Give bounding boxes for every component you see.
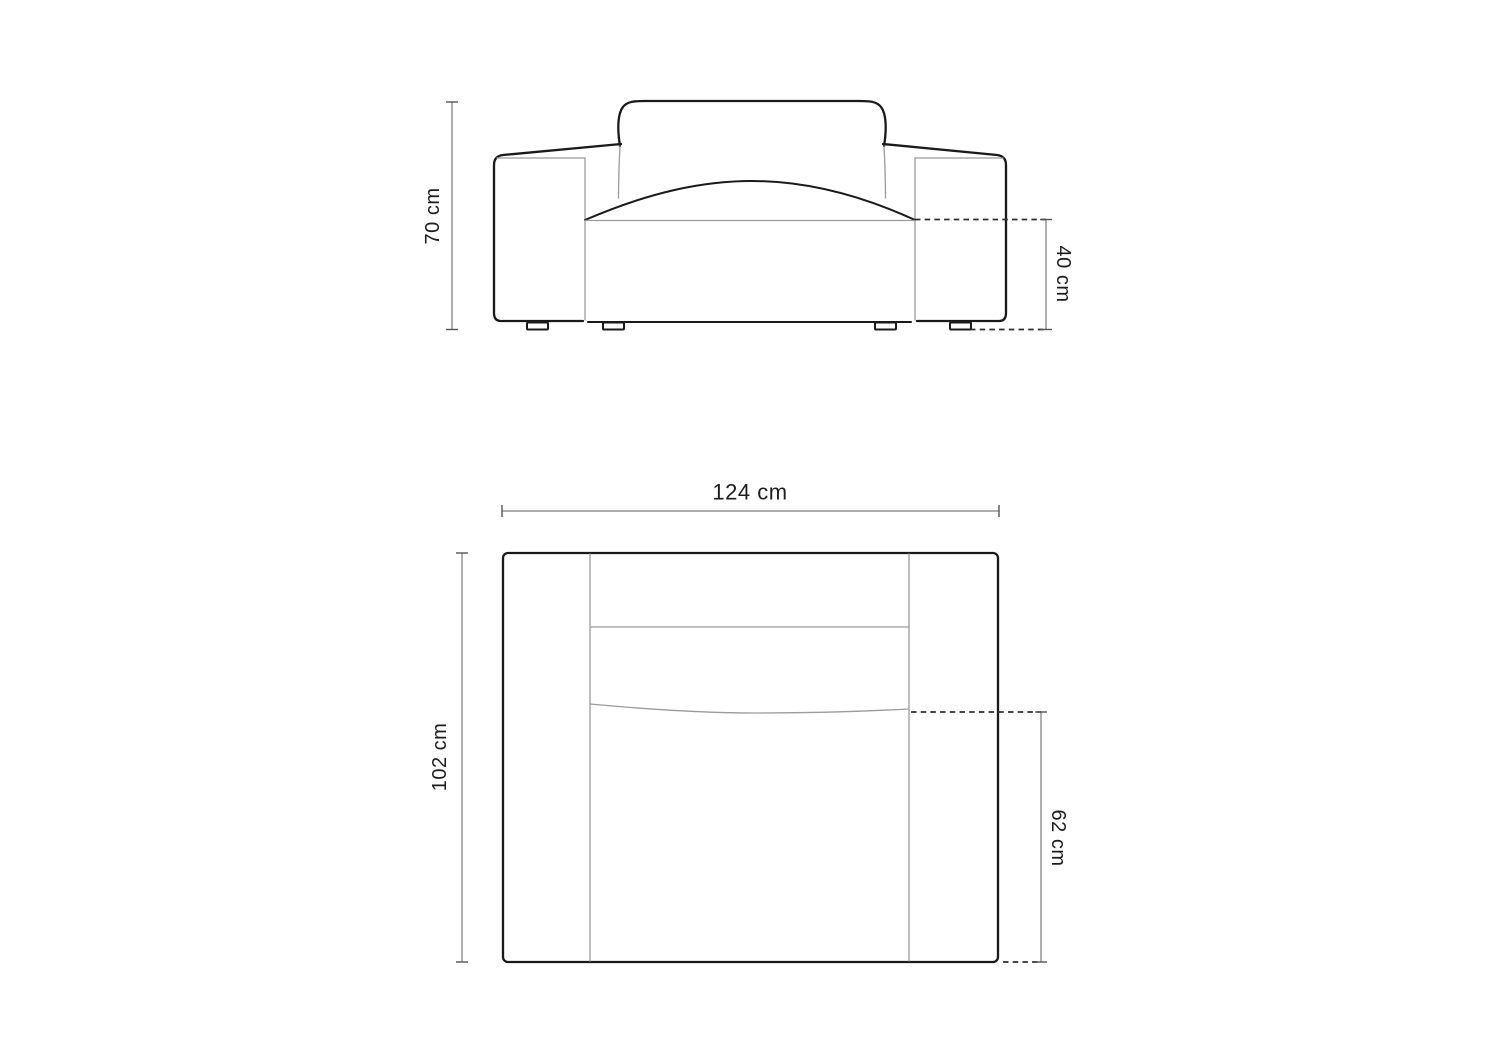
top-depth-dimension: 102 cm [429, 553, 468, 962]
diagram-canvas: 70 cm [0, 0, 1500, 1060]
right-armrest-outline [883, 144, 1006, 321]
front-height-dimension: 70 cm [422, 102, 458, 330]
backrest-outline [618, 101, 885, 146]
backrest-left-lower-edge [619, 146, 621, 198]
top-seat-depth-dimension-label: 62 cm [1047, 810, 1069, 867]
front-foot-3 [875, 323, 896, 330]
front-seat-height-dimension: 40 cm [915, 220, 1074, 330]
top-view: 124 cm 102 cm [429, 480, 1069, 963]
left-armrest-outline [494, 144, 621, 321]
backrest-right-lower-edge [884, 146, 886, 198]
front-foot-4 [950, 323, 971, 330]
front-height-dimension-label: 70 cm [422, 188, 444, 245]
top-seat-front-curve [590, 704, 909, 713]
armchair-front-drawing [494, 101, 1006, 330]
front-foot-2 [603, 323, 624, 330]
front-view: 70 cm [422, 101, 1074, 330]
armchair-top-drawing [503, 553, 998, 962]
front-seat-height-dimension-label: 40 cm [1052, 246, 1074, 303]
top-width-dimension-label: 124 cm [712, 480, 787, 505]
furniture-dimension-diagram: 70 cm [0, 0, 1500, 1060]
top-view-outer-outline [503, 553, 998, 962]
top-depth-dimension-label: 102 cm [429, 723, 451, 792]
top-width-dimension: 124 cm [502, 480, 999, 518]
top-seat-depth-dimension: 62 cm [911, 712, 1069, 962]
front-foot-1 [527, 323, 548, 330]
seat-cushion-curve [585, 181, 915, 220]
